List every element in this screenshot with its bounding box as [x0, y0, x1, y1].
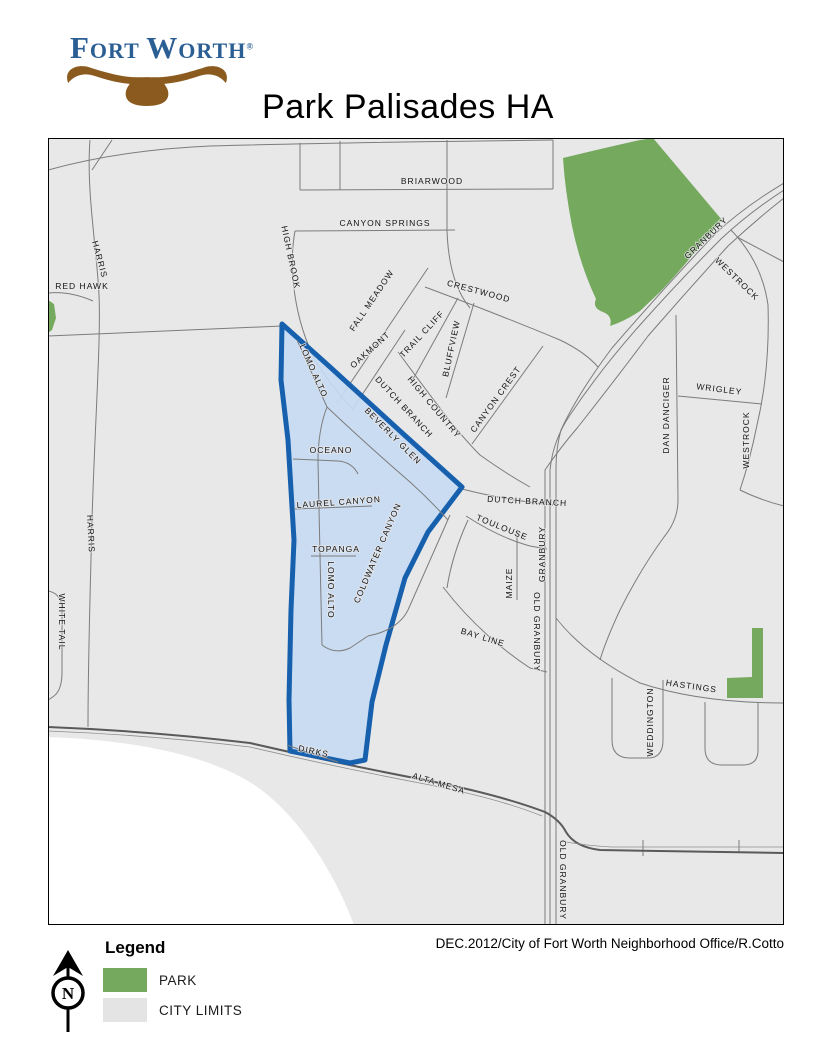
street-label-old-granbury: OLD GRANBURY: [532, 592, 542, 672]
credit-text: DEC.2012/City of Fort Worth Neighborhood…: [436, 936, 784, 951]
fort-worth-logo-text: FORT WORTH®: [62, 30, 262, 66]
street-label-maize: MAIZE: [504, 568, 514, 599]
street-label-lomo-alto: LOMO ALTO: [326, 561, 336, 618]
street-label-briarwood: BRIARWOOD: [401, 176, 463, 186]
page: FORT WORTH® Park Palisades HA: [0, 0, 816, 1056]
street-label-oceano: OCEANO: [310, 445, 353, 455]
street-label-weddington: WEDDINGTON: [645, 688, 655, 757]
street-label-granbury: GRANBURY: [537, 526, 547, 582]
street-label-red-hawk: RED HAWK: [55, 281, 109, 291]
logo-word-fort: ORT: [90, 38, 140, 63]
registered-mark: ®: [246, 42, 254, 52]
logo-word-worth: ORTH: [178, 38, 246, 63]
legend-title: Legend: [105, 938, 165, 958]
north-arrow: N: [44, 948, 92, 1040]
legend-item-city-limits: CITY LIMITS: [103, 998, 242, 1022]
map-container: BRIARWOODCANYON SPRINGSHIGH BROOKHARRISR…: [48, 138, 784, 925]
city-limits-swatch: [103, 998, 147, 1022]
park-swatch: [103, 968, 147, 992]
map-canvas: BRIARWOODCANYON SPRINGSHIGH BROOKHARRISR…: [48, 138, 784, 925]
street-label-white-tail: WHITE TAIL: [57, 594, 67, 651]
street-label-topanga: TOPANGA: [312, 544, 360, 554]
street-label-canyon-springs: CANYON SPRINGS: [340, 218, 431, 228]
legend-item-park: PARK: [103, 968, 197, 992]
street-label-harris: HARRIS: [85, 515, 97, 554]
street-label-westrock: WESTROCK: [741, 411, 751, 468]
legend-label-city-limits: CITY LIMITS: [159, 1003, 242, 1018]
page-title: Park Palisades HA: [0, 88, 816, 127]
legend-label-park: PARK: [159, 973, 197, 988]
street-label-dan-danciger: DAN DANCIGER: [661, 376, 671, 453]
street-label-old-granbury: OLD GRANBURY: [558, 840, 568, 920]
north-letter: N: [62, 984, 75, 1003]
